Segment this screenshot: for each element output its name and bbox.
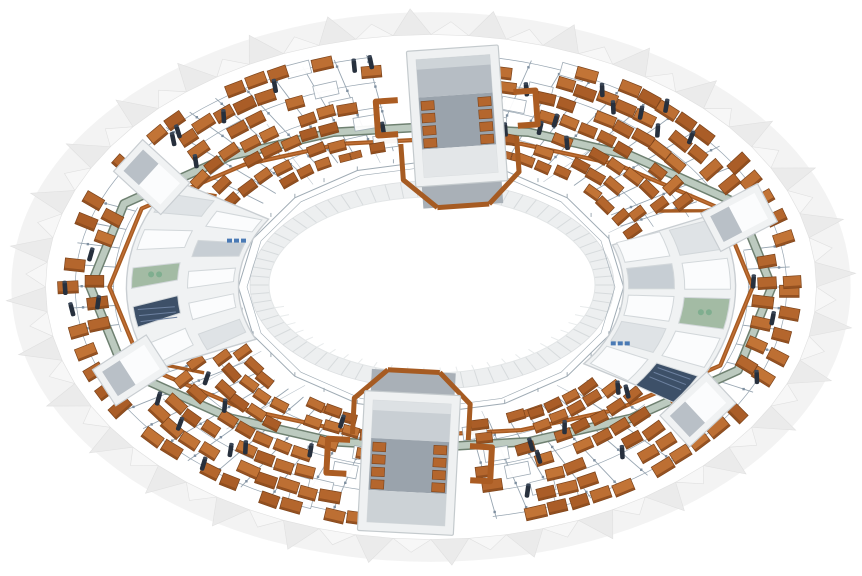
panel-front-edge xyxy=(85,285,104,287)
magnet-panel xyxy=(199,441,220,460)
module-slab xyxy=(480,122,494,132)
cylinder-body xyxy=(769,312,776,326)
magnet-panel xyxy=(369,142,385,154)
rim-pleat xyxy=(131,447,159,465)
rail-node xyxy=(221,103,223,105)
magnet-panel xyxy=(688,144,709,164)
cylinder-body xyxy=(170,133,177,147)
magnet-panel xyxy=(82,191,105,211)
rail-node xyxy=(381,110,383,112)
magnet-panel xyxy=(757,254,777,269)
magnet-panel xyxy=(612,120,634,139)
blue-table xyxy=(611,341,616,345)
rail-node xyxy=(506,114,508,116)
rail-node xyxy=(221,135,223,137)
magnet-panel xyxy=(259,491,280,509)
magnet-panel xyxy=(573,84,597,102)
magnet-panel xyxy=(675,112,697,133)
magnet-panel xyxy=(273,160,293,177)
rail-node xyxy=(87,243,89,245)
magnet-panel xyxy=(225,80,246,98)
rail-node xyxy=(551,446,553,448)
bollard-cylinder xyxy=(154,391,162,406)
cylinder-body xyxy=(600,84,605,97)
module-slab xyxy=(421,101,435,111)
cylinder-body xyxy=(68,303,76,317)
bollard-cylinder xyxy=(562,420,567,434)
manifold-bar xyxy=(388,370,440,373)
cylinder-body xyxy=(243,441,248,454)
cylinder-body xyxy=(620,446,625,459)
rail-node xyxy=(530,120,532,122)
rail-node xyxy=(630,206,632,208)
rail-node xyxy=(247,91,249,93)
magnet-panel xyxy=(311,56,334,72)
module-slab xyxy=(424,138,438,148)
rail-node xyxy=(615,92,617,94)
pump xyxy=(698,309,704,315)
panel-face xyxy=(614,99,637,118)
blue-table xyxy=(625,341,630,345)
rail-node xyxy=(334,506,336,508)
bollard-cylinder xyxy=(87,247,95,262)
cylinder-body xyxy=(524,485,530,499)
bollard-cylinder xyxy=(751,274,756,289)
module-lower-deck xyxy=(422,144,498,177)
bollard-cylinder xyxy=(600,83,605,98)
rail-node xyxy=(665,455,667,457)
rail-node xyxy=(367,138,369,140)
rail-node xyxy=(309,126,311,128)
rail-node xyxy=(171,439,173,441)
module-slab xyxy=(433,445,446,455)
rail-node xyxy=(640,218,642,220)
magnet-panel xyxy=(246,110,267,128)
rail-node xyxy=(220,436,222,438)
magnet-panel xyxy=(68,323,88,340)
west-arc-building xyxy=(92,140,268,406)
magnet-panel xyxy=(758,277,777,290)
render-viewport xyxy=(0,0,862,576)
rail-node xyxy=(593,459,595,461)
magnet-panel xyxy=(317,104,336,119)
magnet-panel xyxy=(506,409,526,424)
rail-node xyxy=(194,454,196,456)
rail-node xyxy=(331,452,333,454)
rail-node xyxy=(198,379,200,381)
rail-node xyxy=(493,511,495,513)
magnet-panel xyxy=(533,145,554,161)
panel-face xyxy=(618,79,642,98)
magnet-panel xyxy=(281,135,301,152)
cylinder-body xyxy=(154,392,162,406)
magnet-panel xyxy=(273,439,292,455)
rail-node xyxy=(542,476,544,478)
cylinder-body xyxy=(562,421,567,434)
magnet-panel xyxy=(533,418,552,433)
rim-pleat xyxy=(645,74,675,92)
rail-node xyxy=(229,165,231,167)
cylinder-body xyxy=(754,371,759,384)
magnet-panel xyxy=(254,450,275,467)
rail-node xyxy=(778,307,780,309)
magnet-panel xyxy=(612,208,630,226)
rail-node xyxy=(150,423,152,425)
magnet-panel xyxy=(236,460,260,480)
rim-pleat xyxy=(186,482,216,500)
rim-pleat xyxy=(105,127,133,147)
rail-node xyxy=(479,461,481,463)
module-slab xyxy=(433,458,446,468)
bollard-cylinder xyxy=(175,416,184,431)
panel-face xyxy=(573,437,594,454)
module-slab xyxy=(372,455,385,465)
magnet-panel xyxy=(85,275,104,287)
magnet-panel xyxy=(637,444,659,464)
cylinder-body xyxy=(655,124,660,137)
magnet-panel xyxy=(273,458,294,474)
magnet-panel xyxy=(58,281,79,294)
magnet-panel xyxy=(752,295,774,309)
magnet-panel xyxy=(279,172,298,189)
rail-node xyxy=(356,114,358,116)
module-slab xyxy=(423,126,437,136)
magnet-panel xyxy=(614,99,637,118)
magnet-panel xyxy=(618,79,642,98)
rail-node xyxy=(573,438,575,440)
rail-node xyxy=(286,437,288,439)
module-slab xyxy=(422,113,436,123)
rail-node xyxy=(527,66,529,68)
module-slab xyxy=(432,470,445,480)
magnet-panel xyxy=(573,437,594,454)
cylinder-body xyxy=(227,444,234,458)
magnet-panel xyxy=(528,406,545,420)
rail-node xyxy=(288,408,290,410)
panel-face xyxy=(551,132,573,149)
magnet-panel xyxy=(563,457,586,475)
rim-pleat xyxy=(729,427,757,447)
magnet-panel xyxy=(253,388,272,405)
rail-node xyxy=(710,149,712,151)
rail-node xyxy=(273,490,275,492)
magnet-panel xyxy=(245,71,268,89)
magnet-panel xyxy=(476,432,493,444)
magnet-panel xyxy=(772,230,794,248)
magnet-panel xyxy=(74,342,97,361)
building-room xyxy=(682,258,730,289)
magnet-panel xyxy=(315,157,332,171)
magnet-panel xyxy=(267,65,289,83)
magnet-panel xyxy=(276,477,299,495)
magnet-panel xyxy=(306,397,325,413)
module-slab xyxy=(480,134,494,144)
rail-node xyxy=(199,423,201,425)
rail-node xyxy=(640,469,642,471)
rail-node xyxy=(766,348,768,350)
rail-node xyxy=(105,202,107,204)
module-slab xyxy=(478,97,492,107)
bollard-cylinder xyxy=(769,311,776,326)
bollard-cylinder xyxy=(686,130,696,145)
panel-face xyxy=(236,460,260,480)
magnet-panel xyxy=(553,165,571,180)
bollard-cylinder xyxy=(351,58,357,73)
magnet-panel xyxy=(656,432,678,452)
magnet-panel xyxy=(633,108,657,128)
building-room xyxy=(192,240,245,256)
cylinder-body xyxy=(351,60,357,73)
magnet-panel xyxy=(585,168,606,186)
magnet-panel xyxy=(577,472,599,489)
cylinder-body xyxy=(62,282,67,295)
rail-node xyxy=(317,476,319,478)
magnet-panel xyxy=(590,485,612,503)
bollard-cylinder xyxy=(655,123,661,138)
rail-node xyxy=(778,266,780,268)
magnet-panel xyxy=(621,430,643,449)
rail-node xyxy=(267,112,269,114)
module-slab xyxy=(371,467,384,477)
magnet-panel xyxy=(534,160,551,175)
rail-node xyxy=(132,406,134,408)
magnet-panel xyxy=(285,95,305,111)
rail-node xyxy=(346,90,348,92)
equipment-outline xyxy=(504,461,530,479)
magnet-panel xyxy=(255,89,277,106)
magnet-panel xyxy=(295,463,316,479)
magnet-panel xyxy=(233,95,257,115)
magnet-panel xyxy=(75,212,98,231)
magnet-panel xyxy=(306,142,326,158)
rail-node xyxy=(554,156,556,158)
cylinder-body xyxy=(615,382,621,395)
pump xyxy=(706,309,712,315)
bollard-cylinder xyxy=(620,445,625,460)
bollard-cylinder xyxy=(227,443,234,458)
rail-node xyxy=(344,482,346,484)
panel-front-edge xyxy=(780,295,800,297)
rail-node xyxy=(374,85,376,87)
bollard-cylinder xyxy=(615,380,621,395)
equipment-outline xyxy=(313,81,339,99)
magnet-panel xyxy=(559,114,579,131)
magnet-panel xyxy=(64,258,85,272)
building-room xyxy=(679,297,730,329)
rim-pleat xyxy=(158,90,186,108)
cylinder-body xyxy=(221,110,226,123)
rail-node xyxy=(245,480,247,482)
rail-node xyxy=(336,65,338,67)
facility-3d-render xyxy=(0,0,862,576)
module-lower-deck xyxy=(367,490,447,526)
blue-table xyxy=(241,239,246,243)
magnet-panel xyxy=(547,499,568,515)
magnet-panel xyxy=(324,508,346,524)
building-room xyxy=(137,230,192,250)
panel-face xyxy=(74,342,97,361)
rail-node xyxy=(632,166,634,168)
module-slab xyxy=(373,442,386,452)
cylinder-body xyxy=(751,275,756,288)
magnet-panel xyxy=(575,66,599,84)
radial-rail xyxy=(77,243,119,248)
magnet-panel xyxy=(252,431,273,448)
panel-face xyxy=(281,135,301,152)
magnet-panel xyxy=(779,306,801,322)
inner-wall-band xyxy=(250,181,614,389)
bollard-cylinder xyxy=(169,132,176,147)
bollard-cylinder xyxy=(68,302,76,317)
panel-face xyxy=(75,212,98,231)
rail-node xyxy=(575,135,577,137)
magnet-panel xyxy=(328,140,347,154)
magnet-panel xyxy=(141,427,164,449)
rail-node xyxy=(613,480,615,482)
magnet-panel xyxy=(303,415,322,430)
rail-node xyxy=(514,482,516,484)
magnet-panel xyxy=(324,404,342,419)
magnet-panel xyxy=(783,275,801,288)
rail-node xyxy=(273,172,275,174)
rail-node xyxy=(185,365,187,367)
blue-table xyxy=(234,239,239,243)
module-slab xyxy=(371,480,384,490)
rail-node xyxy=(742,388,744,390)
module-slab xyxy=(479,109,493,119)
magnet-panel xyxy=(219,473,240,491)
magnet-panel xyxy=(578,122,598,138)
building-room xyxy=(627,264,675,289)
rail-node xyxy=(663,193,665,195)
magnet-panel xyxy=(318,489,341,504)
panel-face xyxy=(563,457,586,475)
magnet-panel xyxy=(771,327,791,343)
pipe-slab xyxy=(339,153,351,163)
pump xyxy=(148,271,154,277)
magnet-panel xyxy=(551,132,573,149)
rim-pleat xyxy=(676,466,704,484)
magnet-panel xyxy=(692,124,715,145)
rail-node xyxy=(287,134,289,136)
module-slab xyxy=(432,483,445,493)
magnet-panel xyxy=(471,419,489,431)
magnet-panel xyxy=(221,363,241,383)
magnet-panel xyxy=(147,124,168,145)
blue-table xyxy=(227,239,232,243)
magnet-panel xyxy=(727,152,751,175)
cylinder-body xyxy=(611,101,616,114)
magnet-panel xyxy=(524,504,548,521)
rail-node xyxy=(196,116,198,118)
rim-pleat xyxy=(704,108,732,126)
magnet-panel xyxy=(606,157,625,175)
magnet-panel xyxy=(545,466,565,481)
magnet-panel xyxy=(556,97,576,113)
rail-node xyxy=(617,448,619,450)
rail-node xyxy=(494,433,496,435)
rail-node xyxy=(333,119,335,121)
rail-node xyxy=(82,306,84,308)
rail-node xyxy=(228,406,230,408)
blue-table xyxy=(618,341,623,345)
rail-node xyxy=(80,285,82,287)
panel-face xyxy=(573,84,597,102)
pump xyxy=(156,271,162,277)
rail-node xyxy=(631,406,633,408)
